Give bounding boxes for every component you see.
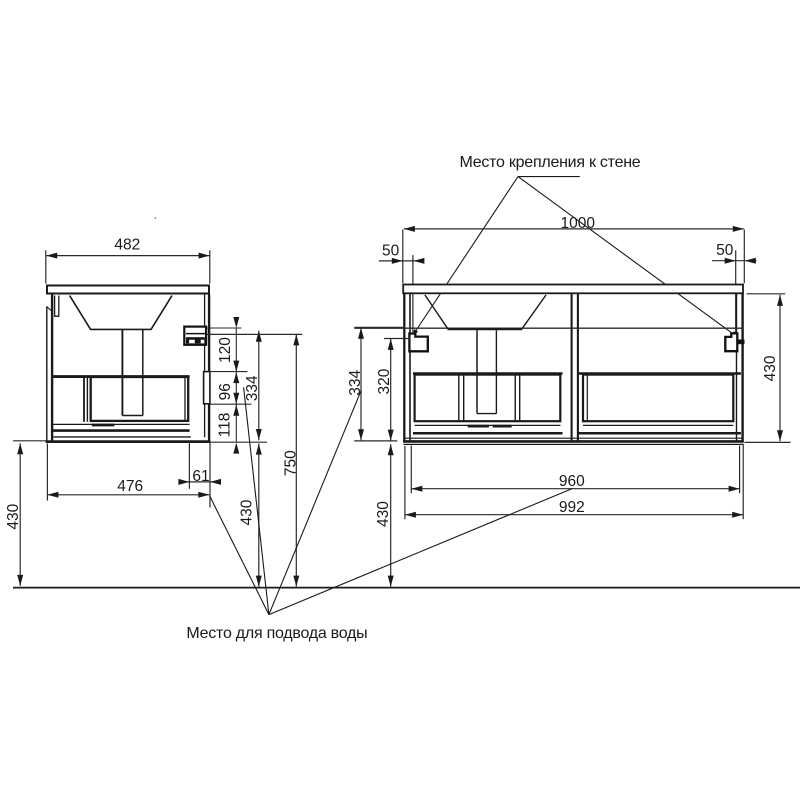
svg-text:96: 96	[217, 383, 234, 400]
svg-text:50: 50	[382, 242, 400, 259]
svg-text:118: 118	[216, 413, 233, 438]
svg-text:50: 50	[716, 242, 734, 259]
svg-text:Место крепления к стене: Место крепления к стене	[460, 154, 641, 171]
svg-text:476: 476	[117, 478, 143, 495]
svg-text:430: 430	[762, 355, 779, 381]
svg-text:320: 320	[376, 368, 393, 394]
svg-text:334: 334	[347, 369, 364, 395]
svg-text:334: 334	[244, 375, 261, 401]
svg-text:430: 430	[239, 499, 256, 525]
svg-text:992: 992	[559, 499, 585, 516]
svg-text:120: 120	[217, 337, 234, 363]
svg-text:482: 482	[114, 237, 140, 254]
svg-text:750: 750	[282, 450, 299, 476]
svg-text:1000: 1000	[561, 215, 596, 232]
svg-text:61: 61	[192, 468, 209, 485]
svg-text:430: 430	[5, 503, 22, 529]
svg-text:Место для подвода воды: Место для подвода воды	[186, 625, 367, 642]
svg-text:960: 960	[559, 473, 585, 490]
svg-text:430: 430	[375, 501, 392, 527]
